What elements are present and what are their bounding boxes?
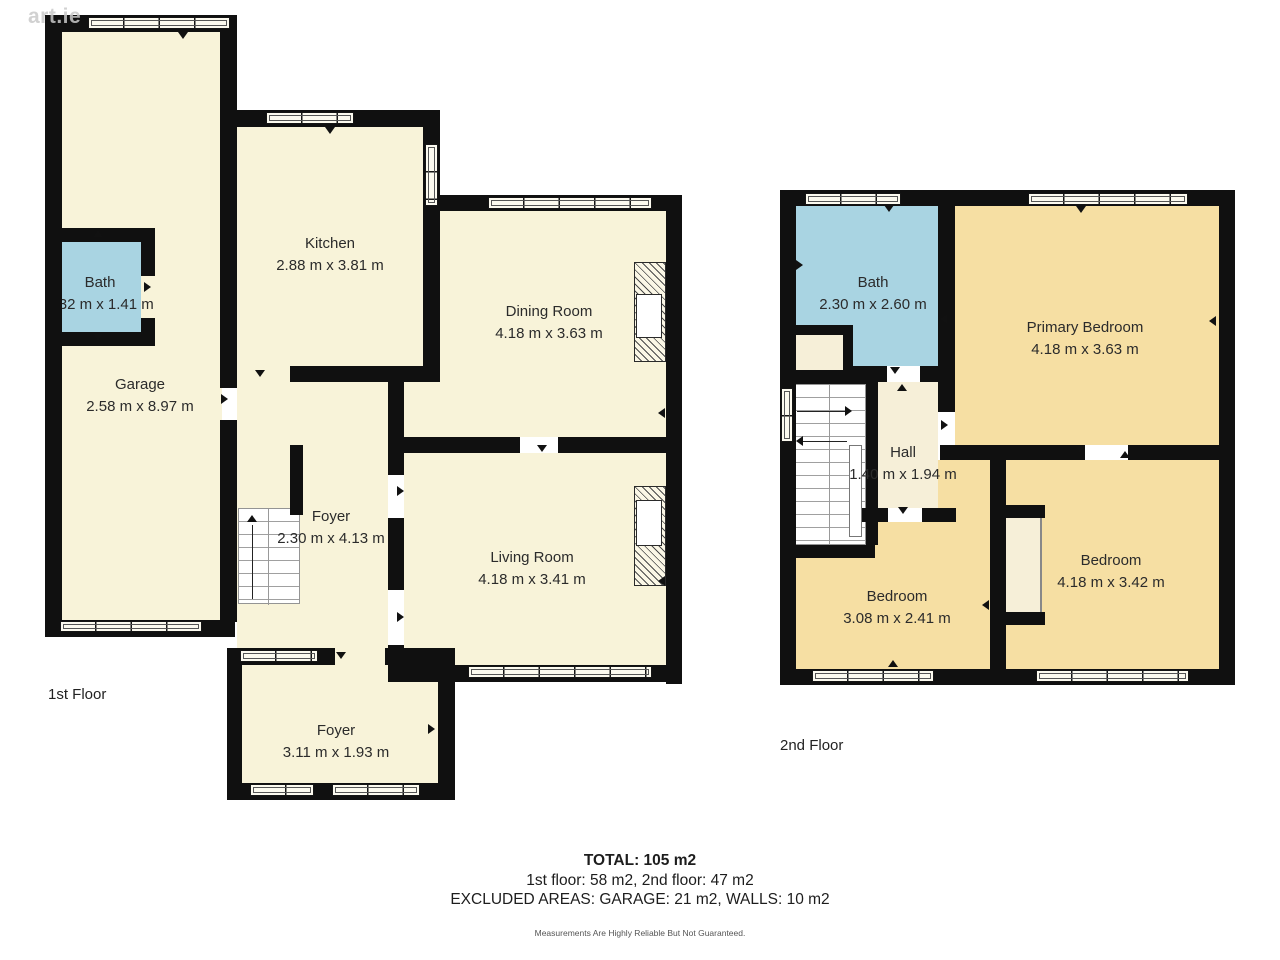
window xyxy=(266,112,354,124)
room-dims: 4.18 m x 3.41 m xyxy=(478,569,586,591)
window xyxy=(88,17,230,29)
room-label-hall: Hall 1.40 m x 1.94 m xyxy=(849,442,957,485)
window xyxy=(332,784,420,796)
room-label-foyer-mid: Foyer 2.30 m x 4.13 m xyxy=(277,506,385,549)
room-label-living: Living Room 4.18 m x 3.41 m xyxy=(478,547,586,590)
wall xyxy=(990,460,1006,685)
stair-arrow-shaft xyxy=(252,525,253,599)
room-dims: 3.08 m x 2.41 m xyxy=(843,608,951,630)
door-arrow xyxy=(658,576,665,586)
fireplace-inset xyxy=(636,500,662,546)
room-name: Kitchen xyxy=(276,233,384,255)
door-arrow xyxy=(93,334,103,341)
stair-right-arrow-icon xyxy=(845,406,852,416)
summary-total: TOTAL: 105 m2 xyxy=(0,851,1280,871)
window xyxy=(425,144,438,206)
room-label-bath-2f: Bath 2.30 m x 2.60 m xyxy=(819,272,927,315)
door-arrow xyxy=(255,370,265,377)
floor-label-2nd: 2nd Floor xyxy=(780,737,843,754)
room-name: Dining Room xyxy=(495,301,603,323)
window xyxy=(1036,670,1189,682)
room-dims: 2.30 m x 2.60 m xyxy=(819,294,927,316)
wall xyxy=(995,505,1045,518)
window xyxy=(1028,193,1188,205)
room-label-foyer-bottom: Foyer 3.11 m x 1.93 m xyxy=(283,720,389,763)
wall xyxy=(141,318,155,346)
wall xyxy=(290,445,303,515)
door-arrow xyxy=(890,367,900,374)
door-arrow xyxy=(658,408,665,418)
summary-disclaimer: Measurements Are Highly Reliable But Not… xyxy=(0,928,1280,938)
wall xyxy=(220,420,237,622)
summary: TOTAL: 105 m2 1st floor: 58 m2, 2nd floo… xyxy=(0,851,1280,910)
room-name: Foyer xyxy=(277,506,385,528)
wall xyxy=(920,366,938,382)
wall xyxy=(388,437,520,453)
room-dims: 1.40 m x 1.94 m xyxy=(849,464,957,486)
room-dims: 2.88 m x 3.81 m xyxy=(276,255,384,277)
door-arrow xyxy=(336,652,346,659)
window xyxy=(805,193,901,205)
window xyxy=(812,670,934,682)
wall xyxy=(786,545,875,558)
door-arrow xyxy=(428,724,435,734)
window xyxy=(488,197,652,209)
room-name: Hall xyxy=(849,442,957,464)
wall xyxy=(227,648,242,800)
stair-arrow-shaft xyxy=(797,411,845,412)
room-name: Bedroom xyxy=(843,586,951,608)
room-bedroom-left xyxy=(875,522,938,558)
window xyxy=(240,650,318,662)
summary-floor-breakdown: 1st floor: 58 m2, 2nd floor: 47 m2 xyxy=(0,871,1280,891)
wall xyxy=(1128,445,1235,460)
wall xyxy=(141,228,155,276)
door-arrow xyxy=(1120,451,1130,458)
room-label-bedroom-right: Bedroom 4.18 m x 3.42 m xyxy=(1057,550,1165,593)
wall xyxy=(862,508,888,522)
wall xyxy=(290,366,440,382)
wall xyxy=(786,370,866,384)
room-name: Bath xyxy=(46,272,154,294)
door-arrow xyxy=(397,486,404,496)
room-name: Bath xyxy=(819,272,927,294)
door-arrow xyxy=(897,384,907,391)
room-label-primary-bedroom: Primary Bedroom 4.18 m x 3.63 m xyxy=(1027,317,1144,360)
window xyxy=(781,388,793,442)
stair-left-arrow-icon xyxy=(796,436,803,446)
wall xyxy=(1219,190,1235,685)
wall xyxy=(922,508,956,522)
floorplan-page: art.ie Bath 1.32 m x 1.41 m xyxy=(0,0,1280,960)
door-arrow xyxy=(325,127,335,134)
room-label-bath-1f: Bath 1.32 m x 1.41 m xyxy=(46,272,154,315)
door-arrow xyxy=(982,600,989,610)
stair-up-arrow-icon xyxy=(247,515,257,522)
door-arrow xyxy=(1076,206,1086,213)
room-bath-2f xyxy=(853,327,938,366)
door-arrow xyxy=(940,314,947,324)
room-dims: 2.30 m x 4.13 m xyxy=(277,528,385,550)
wall xyxy=(995,612,1045,625)
door-arrow xyxy=(796,260,803,270)
door-arrow xyxy=(1075,446,1085,453)
stair-divider xyxy=(829,385,830,546)
wall xyxy=(438,648,455,800)
door-arrow xyxy=(884,205,894,212)
room-name: Living Room xyxy=(478,547,586,569)
stair-arrow-shaft xyxy=(803,441,847,442)
floor-label-1st: 1st Floor xyxy=(48,686,106,703)
stair-divider xyxy=(268,509,269,605)
window xyxy=(250,784,314,796)
closet-2f xyxy=(796,335,843,370)
room-dims: 1.32 m x 1.41 m xyxy=(46,294,154,316)
room-dims: 4.18 m x 3.63 m xyxy=(495,323,603,345)
room-bedroom-left xyxy=(938,460,990,669)
room-label-bedroom-left: Bedroom 3.08 m x 2.41 m xyxy=(843,586,951,629)
door-arrow xyxy=(93,230,103,237)
wall xyxy=(938,190,955,412)
door-arrow xyxy=(178,32,188,39)
room-name: Foyer xyxy=(283,720,389,742)
room-label-dining: Dining Room 4.18 m x 3.63 m xyxy=(495,301,603,344)
wall xyxy=(843,325,853,372)
fireplace-inset xyxy=(636,294,662,338)
door-arrow xyxy=(888,660,898,667)
door-arrow xyxy=(537,445,547,452)
closet-bedroom-right xyxy=(1006,518,1042,612)
wall xyxy=(388,518,404,590)
room-dims: 3.11 m x 1.93 m xyxy=(283,742,389,764)
room-label-garage: Garage 2.58 m x 8.97 m xyxy=(86,374,194,417)
door-arrow xyxy=(221,394,228,404)
wall xyxy=(45,15,62,637)
wall xyxy=(388,382,404,475)
room-name: Garage xyxy=(86,374,194,396)
wall xyxy=(558,437,682,453)
wall xyxy=(940,445,1085,460)
door-arrow xyxy=(1209,316,1216,326)
room-label-kitchen: Kitchen 2.88 m x 3.81 m xyxy=(276,233,384,276)
door-arrow xyxy=(397,612,404,622)
door-arrow xyxy=(144,282,151,292)
room-name: Primary Bedroom xyxy=(1027,317,1144,339)
door-arrow xyxy=(898,507,908,514)
watermark: art.ie xyxy=(28,5,81,29)
room-dims: 2.58 m x 8.97 m xyxy=(86,396,194,418)
wall xyxy=(220,15,237,388)
room-name: Bedroom xyxy=(1057,550,1165,572)
room-dims: 4.18 m x 3.63 m xyxy=(1027,339,1144,361)
window xyxy=(468,666,652,678)
room-dims: 4.18 m x 3.42 m xyxy=(1057,572,1165,594)
door-arrow xyxy=(941,420,948,430)
window xyxy=(60,621,202,632)
summary-excluded-areas: EXCLUDED AREAS: GARAGE: 21 m2, WALLS: 10… xyxy=(0,890,1280,910)
room-dining-ext xyxy=(404,382,444,437)
